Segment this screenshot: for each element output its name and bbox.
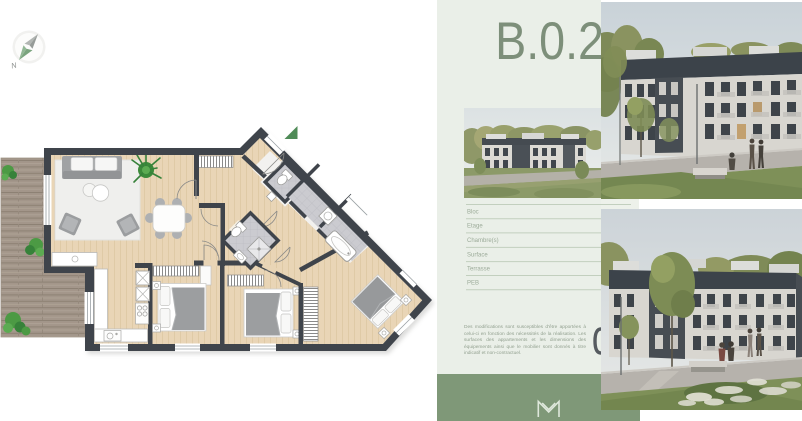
svg-text:Terrasse: Terrasse bbox=[467, 267, 491, 273]
svg-text:Surface: Surface bbox=[467, 252, 488, 258]
svg-text:N: N bbox=[10, 60, 18, 70]
svg-text:Etage: Etage bbox=[467, 224, 483, 230]
svg-text:Bloc: Bloc bbox=[467, 210, 479, 216]
svg-text:PEB: PEB bbox=[467, 281, 479, 287]
svg-text:Chambre(s): Chambre(s) bbox=[467, 238, 499, 244]
